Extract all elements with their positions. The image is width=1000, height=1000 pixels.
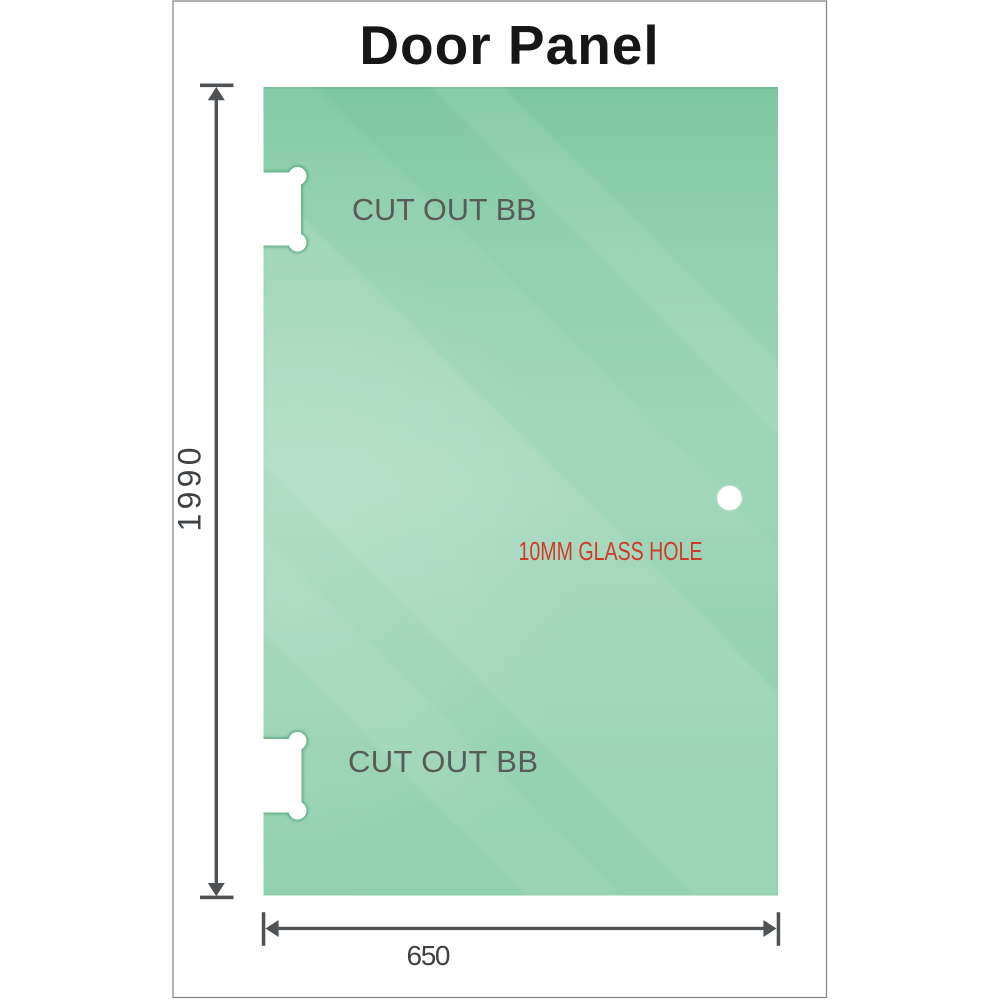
svg-text:650: 650 xyxy=(407,940,451,971)
svg-text:CUT OUT BB: CUT OUT BB xyxy=(352,193,537,227)
svg-text:10MM GLASS HOLE: 10MM GLASS HOLE xyxy=(519,536,703,566)
svg-text:Door Panel: Door Panel xyxy=(359,14,659,76)
svg-text:CUT OUT BB: CUT OUT BB xyxy=(348,744,538,779)
